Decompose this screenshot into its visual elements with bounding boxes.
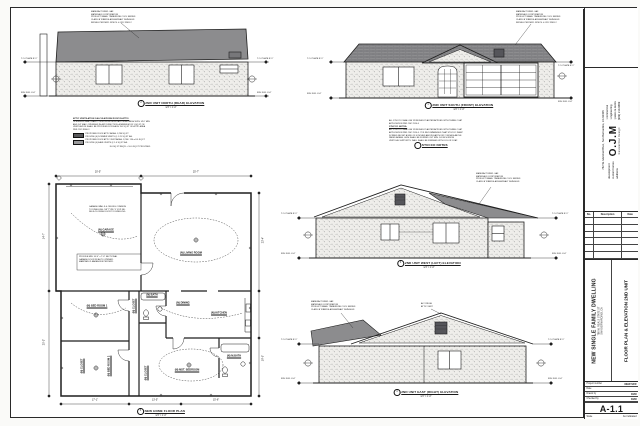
callout-title: 2ND UNIT NORTH (REAR) ELEVATION <box>145 101 204 105</box>
callout-number: 4 <box>394 389 401 396</box>
revision-row <box>585 245 638 252</box>
front-note-leader <box>515 24 531 45</box>
sheet-inner: MANUFACTURER: GAFMATERIALS CORPORATION P… <box>11 8 636 417</box>
west-topplate-left: T.O. PLATE 8'-1" <box>281 213 297 216</box>
attic-legend-swatch-2 <box>73 140 84 145</box>
plan-dim-left-1: 14'-7" <box>43 233 46 239</box>
revision-table: No. Description Date <box>585 212 638 260</box>
project-title-block: NEW SINGLE FAMILY DWELLING 786 W. REALS … <box>585 260 638 382</box>
revision-row <box>585 252 638 259</box>
north-floor-right: FIN. FLR. 0'-0" <box>257 92 271 95</box>
room-label-closet-hall: (N) CLOSET <box>133 299 136 314</box>
callout-title: 2ND UNIT SOUTH (FRONT) ELEVATION <box>432 103 493 107</box>
revision-row <box>585 238 638 245</box>
callout-scale: 1/4" = 1'-0" <box>138 107 205 109</box>
sheet-number-box: A-1.1 <box>585 402 638 414</box>
east-mfr-note: MANUFACTURER: GAFMATERIALS CORPORATION P… <box>311 301 355 312</box>
front-entry-door <box>438 66 457 97</box>
project-title-column: NEW SINGLE FAMILY DWELLING 786 W. REALS … <box>585 260 612 382</box>
room-label-master: (N) MST. BEDROOM <box>175 369 200 372</box>
room-label-bed2: (N) BED ROOM 2 <box>108 356 111 377</box>
plan-dim-top-1: 20'-5" <box>95 171 101 174</box>
north-topplate-left: T.O. PLATE 8'-1" <box>21 58 37 61</box>
plan-dim-left-2: 25'-3" <box>43 339 46 345</box>
plan-electrical-arcs <box>71 213 243 381</box>
room-label-bed1: (N) BED ROOM 1 <box>87 305 108 308</box>
plan-dim-right-1: 23'-4" <box>262 237 265 243</box>
floor-plan-callout: 5NEW HOME FLOOR PLAN 1/4" = 1'-0" <box>137 408 185 417</box>
north-roof <box>56 29 248 62</box>
project-info-rows: Project number NEW SFR Date Drawn by OJM… <box>585 382 638 402</box>
west-elevation-callout: 32ND UNIT WEST (LEFT) ELEVATION 1/4" = 1… <box>397 260 460 269</box>
west-elevation-drawing <box>297 185 558 260</box>
room-label-kitchen: (N) KITCHEN <box>211 312 227 315</box>
front-elevation-callout: 12ND UNIT SOUTH (FRONT) ELEVATION 1/4" =… <box>425 102 493 111</box>
front-topplate-left: T.O. PLATE 8'-1" <box>307 58 323 61</box>
front-attic-vent <box>494 49 504 57</box>
sheet-title-column: FLOOR PLAN & ELEVATION 2ND UNIT <box>612 260 638 382</box>
callout-title: 2ND UNIT EAST (RIGHT) ELEVATION <box>401 390 458 394</box>
room-label-dining: (N) DINING <box>176 302 189 305</box>
front-floor-left: FIN. FLR. 0'-0" <box>307 93 321 96</box>
plan-dim-top-2: 25'-7" <box>193 171 199 174</box>
west-wall <box>316 218 488 258</box>
west-note-leader <box>479 187 491 204</box>
north-wall <box>56 62 248 96</box>
north-topplate-right: T.O. PLATE 8'-1" <box>257 58 273 61</box>
attic-ventilation-notes: ATTIC VENTILATION CALCULATIONS ROOF IN A… <box>73 118 150 148</box>
stamp-box <box>585 8 638 68</box>
sheet-number: A-1.1 <box>585 403 638 414</box>
company-block: 782 W. Marshall Blvd., San Bernardino, C… <box>585 68 638 212</box>
east-attic-vent <box>435 322 447 334</box>
callout-title: STUCCO NOTES <box>422 143 448 147</box>
front-topplate-right: T.O. PLATE 8'-1" <box>558 65 574 68</box>
callout-number <box>414 142 421 149</box>
plan-dim-bottom-2: 13'-5" <box>152 399 158 402</box>
east-elevation-drawing <box>297 309 553 385</box>
plan-dimension-lines <box>48 175 261 406</box>
revision-row <box>585 218 638 225</box>
east-floor-left: FIN. FLR. 0'-0" <box>281 378 295 381</box>
company-services-right: : commercial : engineering : patios & de… <box>606 101 622 120</box>
plan-fixtures <box>141 293 251 377</box>
west-attic-vent <box>395 194 405 205</box>
west-floor-right: FIN. FLR. 0'-0" <box>552 253 566 256</box>
north-wall-return <box>40 34 47 96</box>
callout-scale: 1/4" = 1'-0" <box>425 109 493 111</box>
room-label-living: (N) LIVING ROOM <box>180 252 202 255</box>
north-mfr-note: MANUFACTURER: GAFMATERIALS CORPORATION P… <box>91 11 135 24</box>
plan-door-swings <box>118 193 219 361</box>
plan-dim-bottom-1: 17'-1" <box>92 399 98 402</box>
screenshot-root: MANUFACTURER: GAFMATERIALS CORPORATION P… <box>0 0 640 426</box>
east-topplate-left: T.O. PLATE 8'-1" <box>281 339 297 342</box>
plan-dim-bottom-3: 15'-6" <box>213 399 219 402</box>
project-address-2: SAN BERNARDINO, CA <box>601 262 604 380</box>
front-mfr-note: MANUFACTURER: GAFMATERIALS CORPORATION P… <box>516 11 560 24</box>
stucco-notes: ALL STUCCO SHALL BE 7/8 INCHES PLASTER A… <box>389 120 463 143</box>
plan-exterior-walls <box>56 184 251 396</box>
north-floor-left: FIN. FLR. 0'-0" <box>21 92 35 95</box>
garage-wall-note: GARAGE WALLS & CEILING COMMONTO DWELLING… <box>89 206 126 214</box>
front-floor-right: FIN. FLR. 0'-0" <box>558 101 572 104</box>
company-services-left: development custom homes additions <box>608 161 620 178</box>
callout-number: 2 <box>138 100 145 107</box>
west-topplate-right: T.O. PLATE 8'-1" <box>552 213 568 216</box>
drawing-sheet: MANUFACTURER: GAFMATERIALS CORPORATION P… <box>10 7 637 418</box>
room-label-closet-2: (N) CLOSET <box>145 366 148 381</box>
callout-title: 2ND UNIT WEST (LEFT) ELEVATION <box>405 261 461 265</box>
east-wall <box>319 346 526 383</box>
revision-row <box>585 232 638 239</box>
front-elevation-drawing <box>329 24 573 100</box>
attic-legend-swatch-1 <box>73 133 84 138</box>
callout-number: 1 <box>425 102 432 109</box>
title-block: 782 W. Marshall Blvd., San Bernardino, C… <box>584 8 638 419</box>
stucco-notes-callout: STUCCO NOTES <box>414 142 447 149</box>
east-elevation-callout: 42ND UNIT EAST (RIGHT) ELEVATION 1/4" = … <box>394 389 459 398</box>
callout-scale: 1/4" = 1'-0" <box>394 396 459 398</box>
revision-row <box>585 225 638 232</box>
company-address: 782 W. Marshall Blvd., San Bernardino, C… <box>601 70 604 210</box>
east-topplate-right: T.O. PLATE 8'-1" <box>548 339 564 342</box>
east-floor-right: FIN. FLR. 0'-0" <box>548 378 562 381</box>
scale-row: Scale As indicated <box>585 414 638 419</box>
callout-scale: 1/4" = 1'-0" <box>397 267 460 269</box>
floor-plan-drawing <box>48 175 261 406</box>
room-label-closet-1: (N) CLOSET <box>81 359 84 374</box>
west-floor-left: FIN. FLR. 0'-0" <box>281 253 295 256</box>
plan-outlets <box>56 184 251 396</box>
room-label-bath: (N) BATH <box>146 294 157 297</box>
callout-title: NEW HOME FLOOR PLAN <box>145 409 185 413</box>
room-label-garage: (N) GARAGE <box>98 229 114 232</box>
garage-door-note: PROVIDE MIN. 16'-0" x 7'-0" SECTIONALGAR… <box>79 256 117 264</box>
plan-dim-right-2: 19'-5" <box>262 355 265 361</box>
east-small-note: ALT. RIDGEATTIC VENT <box>421 303 433 308</box>
callout-scale: 1/4" = 1'-0" <box>137 415 185 417</box>
sheet-title: FLOOR PLAN & ELEVATION 2ND UNIT <box>623 262 628 380</box>
north-roof-vent <box>229 52 241 58</box>
company-logo: O.J.M Residential Design <box>607 125 620 156</box>
north-elevation-drawing <box>23 23 269 98</box>
north-elevation-callout: 22ND UNIT NORTH (REAR) ELEVATION 1/4" = … <box>138 100 205 109</box>
room-label-mbath: (N) M.BATH <box>227 355 241 358</box>
west-mfr-note: MANUFACTURER: GAFMATERIALS CORPORATION P… <box>476 173 520 184</box>
callout-number: 5 <box>137 408 144 415</box>
callout-number: 3 <box>397 260 404 267</box>
